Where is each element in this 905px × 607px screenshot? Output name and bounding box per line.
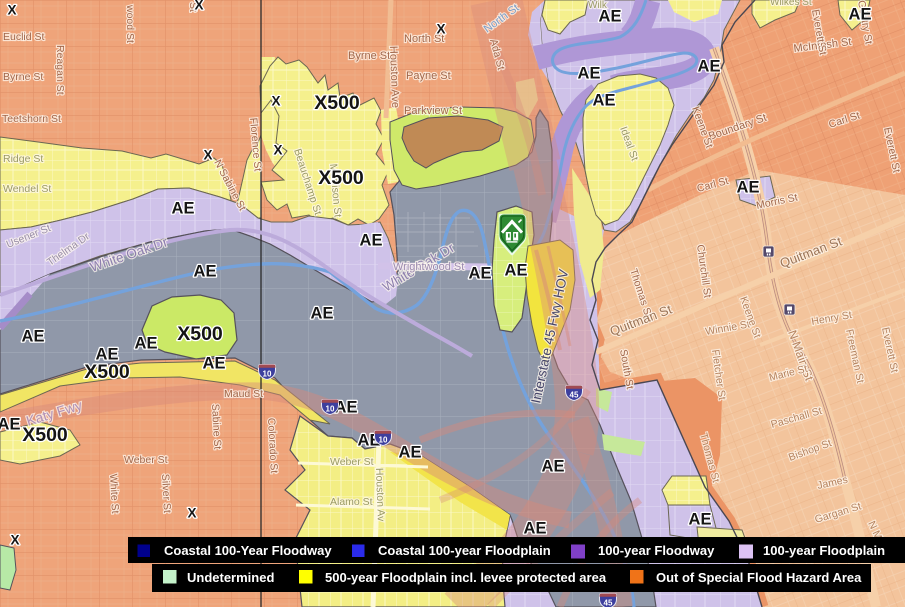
svg-text:Parkview St: Parkview St (404, 105, 462, 117)
svg-text:X: X (7, 3, 16, 18)
svg-text:10: 10 (379, 436, 388, 445)
svg-text:X: X (271, 94, 280, 109)
svg-text:45: 45 (570, 391, 579, 400)
svg-text:Out of Special Flood Hazard Ar: Out of Special Flood Hazard Area (656, 570, 862, 585)
svg-text:AE: AE (172, 199, 195, 217)
svg-text:100-year Floodway: 100-year Floodway (598, 543, 715, 558)
svg-text:Reagan St: Reagan St (54, 45, 66, 95)
svg-text:X500: X500 (318, 167, 364, 189)
svg-text:X: X (273, 143, 282, 158)
svg-text:X500: X500 (314, 92, 360, 114)
svg-text:AE: AE (698, 57, 721, 75)
svg-text:AE: AE (0, 415, 20, 433)
svg-text:Wendel St: Wendel St (3, 183, 51, 195)
svg-text:AE: AE (135, 334, 158, 352)
svg-text:AE: AE (22, 327, 45, 345)
svg-text:Weber St: Weber St (330, 456, 374, 468)
svg-text:Houston Av: Houston Av (373, 468, 387, 523)
svg-text:AE: AE (399, 443, 422, 461)
svg-text:Alamo St: Alamo St (330, 496, 373, 508)
svg-text:AE: AE (578, 64, 601, 82)
svg-text:100-year Floodplain: 100-year Floodplain (763, 543, 885, 558)
svg-text:AE: AE (524, 519, 547, 537)
svg-text:X500: X500 (22, 424, 68, 446)
svg-text:45: 45 (604, 599, 613, 607)
svg-text:X: X (203, 148, 212, 163)
svg-text:AE: AE (599, 7, 622, 25)
svg-text:AE: AE (737, 178, 760, 196)
svg-text:X: X (194, 0, 203, 13)
svg-text:AE: AE (469, 264, 492, 282)
svg-text:Wilkes St: Wilkes St (770, 0, 812, 8)
svg-text:X: X (10, 533, 19, 548)
svg-text:Euclid St: Euclid St (3, 31, 45, 43)
svg-text:AE: AE (542, 457, 565, 475)
svg-text:wood St: wood St (124, 4, 136, 43)
svg-text:AE: AE (849, 5, 872, 23)
svg-text:AE: AE (593, 91, 616, 109)
svg-text:Byrne St: Byrne St (348, 50, 390, 62)
svg-text:10: 10 (326, 405, 335, 414)
svg-text:Byrne St: Byrne St (3, 71, 43, 83)
svg-text:Teetshorn St: Teetshorn St (2, 113, 61, 125)
svg-text:Houston Ave: Houston Ave (387, 46, 401, 109)
svg-text:X500: X500 (84, 361, 130, 383)
svg-text:Payne St: Payne St (406, 70, 451, 82)
svg-text:500-year Floodplain incl. leve: 500-year Floodplain incl. levee protecte… (325, 570, 607, 585)
svg-text:Sabine St: Sabine St (209, 404, 223, 450)
svg-text:AE: AE (360, 231, 383, 249)
svg-text:AE: AE (311, 304, 334, 322)
svg-text:Coastal 100-year Floodplain: Coastal 100-year Floodplain (378, 543, 551, 558)
svg-text:X: X (187, 506, 196, 521)
svg-text:X500: X500 (177, 323, 223, 345)
svg-text:10: 10 (263, 370, 272, 379)
svg-text:White St: White St (107, 474, 121, 514)
svg-text:Silver St: Silver St (159, 474, 173, 514)
svg-text:Ridge St: Ridge St (3, 153, 43, 165)
svg-text:AE: AE (689, 510, 712, 528)
svg-text:Maud St: Maud St (224, 388, 263, 400)
svg-text:Wrightwood St: Wrightwood St (393, 261, 464, 273)
svg-text:X: X (436, 22, 445, 37)
svg-text:Coastal 100-Year Floodway: Coastal 100-Year Floodway (164, 543, 332, 558)
svg-text:AE: AE (194, 262, 217, 280)
svg-text:AE: AE (203, 354, 226, 372)
svg-text:Weber St: Weber St (124, 454, 168, 466)
svg-text:AE: AE (505, 261, 528, 279)
svg-text:Undetermined: Undetermined (187, 570, 274, 585)
